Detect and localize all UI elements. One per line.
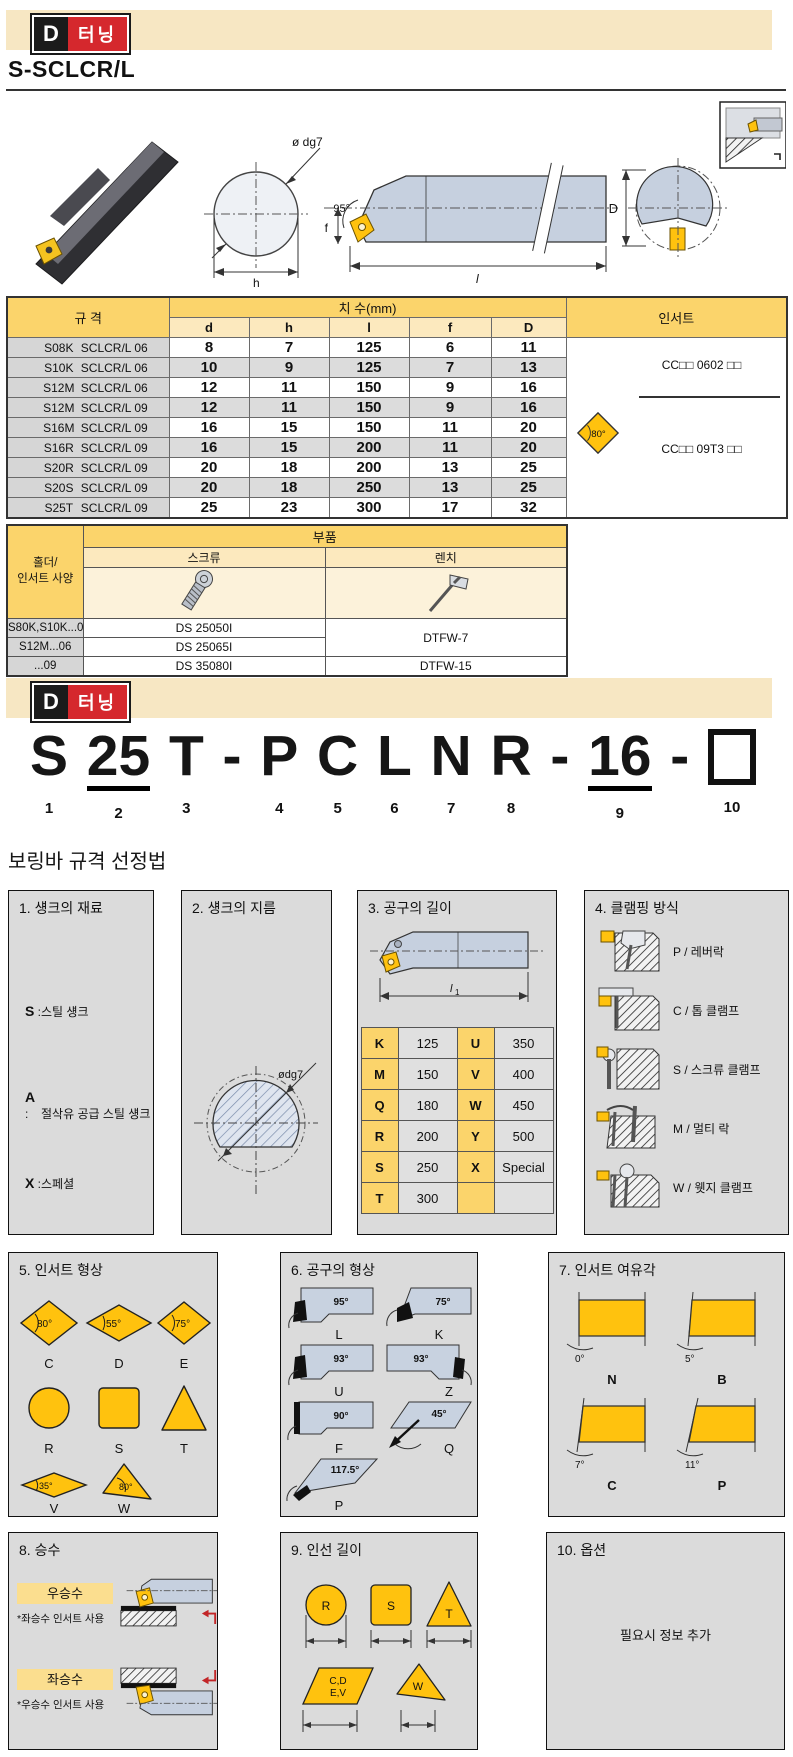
svg-text:90°: 90° <box>333 1411 348 1422</box>
svg-text:V: V <box>50 1501 59 1515</box>
svg-text:N: N <box>607 1372 616 1387</box>
dg7-label: ø dg7 <box>292 135 323 149</box>
box-title: 6. 공구의 형상 <box>281 1253 477 1280</box>
spec-table: 규 격 치 수(mm) 인서트 d h l f D S08KSCLCR/L 06… <box>6 296 788 519</box>
box-title: 7. 인서트 여유각 <box>549 1253 784 1280</box>
box-title: 5. 인서트 형상 <box>9 1253 217 1280</box>
svg-text:T: T <box>180 1441 188 1456</box>
svg-text:Z: Z <box>445 1384 453 1399</box>
pn-segment: T3 <box>169 726 204 818</box>
svg-text:P: P <box>335 1498 344 1513</box>
part-number: S1 252 T3 - P4 C5 L6 N7 R8 - 169 - 10 <box>30 726 756 823</box>
f-label: f <box>325 221 329 235</box>
screw-part-no: DS 25050I <box>83 619 325 638</box>
insert-header: 인서트 <box>566 297 787 338</box>
l1-sub: 1 <box>455 988 460 997</box>
l1-label: l <box>450 983 453 995</box>
insert-shape-diagram: 80° 55° 75° C D E R S T 35° 80° V W <box>9 1280 216 1515</box>
side-view: 95° f l <box>324 163 618 286</box>
option-box-icon <box>708 729 756 785</box>
clamping-option: S / 스크류 클램프 <box>593 1043 782 1095</box>
left-hand-chip: 좌승수 <box>17 1669 113 1690</box>
style-K: 75° K <box>387 1288 471 1342</box>
svg-text:C: C <box>44 1356 53 1371</box>
wrench-image <box>416 569 476 615</box>
material-option: A절삭유 공급 스틸 섕크 <box>25 1089 150 1122</box>
tool-length-table: K125U350 M150V400 Q180W450 R200Y500 S250… <box>361 1027 554 1214</box>
svg-text:C: C <box>607 1478 617 1493</box>
box-shank-material: 1. 섕크의 재료 S스틸 섕크 A절삭유 공급 스틸 섕크 X스페셜 <box>8 890 154 1235</box>
spec-code: S08K <box>29 341 81 355</box>
insert-column: CC□□ 0602 □□ 80° CC□□ 09T3 □□ <box>566 338 787 519</box>
style-Z: 93° Z <box>387 1345 471 1399</box>
edge-length-diagram: R S T C,D E,V W <box>281 1560 476 1746</box>
insert-code-bottom: CC□□ 09T3 □□ <box>622 442 782 456</box>
box-title: 4. 클램핑 방식 <box>585 891 788 918</box>
wrench-part-no: DTFW-7 <box>325 619 567 657</box>
svg-text:45°: 45° <box>431 1409 446 1420</box>
svg-text:F: F <box>335 1441 343 1456</box>
box-title: 2. 섕크의 지름 <box>182 891 331 918</box>
svg-text:C,D: C,D <box>329 1676 346 1687</box>
holder-row-label: S12M...06 <box>7 638 83 657</box>
svg-text:117.5°: 117.5° <box>331 1465 359 1476</box>
wedge-clamp-icon <box>593 1161 665 1213</box>
shank-diameter-diagram: ødg7 <box>182 918 330 1233</box>
brand-bar-top: D 터닝 <box>6 10 772 50</box>
material-option: X스페셜 <box>25 1175 74 1192</box>
screw-part-no: DS 35080I <box>83 657 325 677</box>
multi-lock-icon <box>593 1102 665 1154</box>
box-tool-length: 3. 공구의 길이 l 1 K125U350 M150V400 Q180W450… <box>357 890 557 1235</box>
svg-text:80°: 80° <box>37 1319 52 1330</box>
svg-text:5°: 5° <box>685 1354 695 1365</box>
table-row: S08KSCLCR/L 06 87125611 CC□□ 0602 □□ 80°… <box>7 338 787 358</box>
right-hand-chip: 우승수 <box>17 1583 113 1604</box>
top-clamp-icon <box>593 984 665 1036</box>
col-l: l <box>329 318 409 338</box>
left-hand-option: 좌승수 *우승수 인서트 사용 <box>17 1659 219 1721</box>
svg-text:11°: 11° <box>685 1460 699 1471</box>
selection-guide-title: 보링바 규격 선정법 <box>8 845 166 874</box>
pn-segment: 252 <box>87 726 150 823</box>
svg-text:S: S <box>115 1441 124 1456</box>
pn-segment: P4 <box>260 726 298 818</box>
holder-row-label: ...09 <box>7 657 83 677</box>
brand-bar-mid: D 터닝 <box>6 678 772 718</box>
tool-length-diagram: l 1 <box>358 918 555 1018</box>
dg7-label: ødg7 <box>278 1069 303 1081</box>
spec-name: SCLCR/L 06 <box>81 341 148 355</box>
box-option: 10. 옵션 필요시 정보 추가 <box>546 1532 785 1750</box>
box-tool-style: 6. 공구의 형상 95° L 75° K 93° U <box>280 1252 478 1517</box>
pn-dash: - <box>670 726 689 818</box>
logo-brand-text: 터닝 <box>68 17 127 51</box>
parts-header: 부품 <box>83 525 567 548</box>
insert-divider <box>639 396 781 398</box>
box-clamping-system: 4. 클램핑 방식 P / 레버락 C / 톱 클램프 <box>584 890 789 1235</box>
end-view: D <box>609 158 728 258</box>
D-label: D <box>609 201 618 216</box>
l-label: l <box>476 272 479 286</box>
dims-header: 치 수(mm) <box>169 297 566 318</box>
pn-segment: S1 <box>30 726 68 818</box>
right-hand-note: *좌승수 인서트 사용 <box>17 1611 113 1626</box>
pn-segment: 169 <box>588 726 651 823</box>
clearance-angle-diagram: 0° N 5° B 7° C 11° P <box>549 1280 783 1514</box>
page-title: S-SCLCR/L <box>8 56 135 83</box>
logo-d-icon: D <box>34 17 68 51</box>
svg-text:93°: 93° <box>413 1354 428 1365</box>
screw-image <box>174 569 234 615</box>
h-label: h <box>253 276 260 288</box>
svg-text:R: R <box>44 1441 53 1456</box>
svg-text:D: D <box>114 1356 123 1371</box>
shank-section-view: ø dg7 h <box>204 135 323 288</box>
svg-text:35°: 35° <box>39 1481 53 1491</box>
svg-text:55°: 55° <box>106 1319 121 1330</box>
pn-segment: C5 <box>317 726 358 818</box>
svg-text:B: B <box>717 1372 726 1387</box>
clamping-option: P / 레버락 <box>593 925 782 977</box>
screw-image-cell <box>83 568 325 619</box>
option-note: 필요시 정보 추가 <box>547 1625 784 1644</box>
style-U: 93° U <box>289 1345 373 1399</box>
svg-text:Q: Q <box>444 1441 454 1456</box>
screw-part-no: DS 25065I <box>83 638 325 657</box>
pn-option-box: 10 <box>708 726 756 817</box>
svg-text:75°: 75° <box>175 1319 190 1330</box>
wrench-part-no: DTFW-15 <box>325 657 567 677</box>
svg-text:P: P <box>718 1478 727 1493</box>
col-h: h <box>249 318 329 338</box>
svg-text:K: K <box>435 1327 444 1342</box>
col-D: D <box>491 318 566 338</box>
svg-text:W: W <box>413 1681 424 1693</box>
style-P: 117.5° P <box>287 1459 377 1513</box>
wrench-image-cell <box>325 568 567 619</box>
svg-text:80°: 80° <box>119 1482 133 1492</box>
insert-code-top: CC□□ 0602 □□ <box>622 358 782 372</box>
material-option: S스틸 섕크 <box>25 1003 89 1020</box>
svg-text:W: W <box>118 1501 131 1515</box>
logo-d-icon: D <box>34 685 68 719</box>
holder-row-label: S80K,S10K...06 <box>7 619 83 638</box>
box-shank-diameter: 2. 섕크의 지름 ødg7 <box>181 890 332 1235</box>
svg-text:93°: 93° <box>333 1354 348 1365</box>
screw-clamp-icon <box>593 1043 665 1095</box>
angle-N: 0° N <box>567 1292 645 1387</box>
application-icon <box>720 102 786 168</box>
pn-segment: N7 <box>431 726 472 818</box>
screw-header: 스크류 <box>83 548 325 568</box>
pn-dash: - <box>550 726 569 818</box>
style-L: 95° L <box>289 1288 373 1342</box>
title-divider <box>6 89 786 91</box>
col-d: d <box>169 318 249 338</box>
angle-P: 11° P <box>677 1398 755 1493</box>
catalog-page: D 터닝 S-SCLCR/L ø dg7 <box>0 0 793 1757</box>
brand-logo: D 터닝 <box>30 13 131 55</box>
svg-text:75°: 75° <box>435 1297 450 1308</box>
svg-text:7°: 7° <box>575 1460 585 1471</box>
svg-text:L: L <box>335 1327 342 1342</box>
box-title: 8. 승수 <box>9 1533 217 1560</box>
pn-segment: R8 <box>490 726 531 818</box>
svg-text:T: T <box>445 1607 453 1621</box>
insert-angle-label: 80° <box>591 429 606 440</box>
clamping-option: C / 톱 클램프 <box>593 984 782 1036</box>
box-title: 1. 섕크의 재료 <box>9 891 153 918</box>
left-hand-illustration <box>119 1659 219 1721</box>
box-clearance-angle: 7. 인서트 여유각 0° N 5° B 7° C <box>548 1252 785 1517</box>
svg-text:S: S <box>387 1599 395 1613</box>
angle-B: 5° B <box>677 1292 755 1387</box>
box-title: 3. 공구의 길이 <box>358 891 556 918</box>
technical-drawing: ø dg7 h 95° f <box>6 96 786 288</box>
style-Q: 45° Q <box>389 1402 471 1456</box>
col-f: f <box>409 318 491 338</box>
svg-text:0°: 0° <box>575 1354 585 1365</box>
box-title: 10. 옵션 <box>547 1533 784 1560</box>
right-hand-option: 우승수 *좌승수 인서트 사용 <box>17 1573 219 1635</box>
clamping-option: W / 웻지 클램프 <box>593 1161 782 1213</box>
insert-diamond-icon: 80° <box>575 410 621 456</box>
svg-text:E: E <box>180 1356 189 1371</box>
svg-text:U: U <box>334 1384 343 1399</box>
box-hand: 8. 승수 우승수 *좌승수 인서트 사용 좌승수 *우승수 인서트 사용 <box>8 1532 218 1750</box>
holder-header: 홀더/ 인서트 사양 <box>7 525 83 619</box>
lever-lock-icon <box>593 925 665 977</box>
logo-brand-text: 터닝 <box>68 685 127 719</box>
box-title: 9. 인선 길이 <box>281 1533 477 1560</box>
svg-text:E,V: E,V <box>330 1688 346 1699</box>
spec-header: 규 격 <box>7 297 169 338</box>
tool-style-diagram: 95° L 75° K 93° U 93° <box>281 1280 476 1514</box>
box-insert-shape: 5. 인서트 형상 80° 55° 75° C D E R S T 35° <box>8 1252 218 1517</box>
style-F: 90° F <box>288 1402 373 1456</box>
tool-photo <box>36 142 178 284</box>
angle-C: 7° C <box>567 1398 645 1493</box>
pn-dash: - <box>223 726 242 818</box>
left-hand-note: *우승수 인서트 사용 <box>17 1697 113 1712</box>
pn-segment: L6 <box>377 726 412 818</box>
brand-logo: D 터닝 <box>30 681 131 723</box>
wrench-header: 렌치 <box>325 548 567 568</box>
svg-text:95°: 95° <box>333 1297 348 1308</box>
box-edge-length: 9. 인선 길이 R S T C,D E,V W <box>280 1532 478 1750</box>
svg-text:R: R <box>322 1599 331 1613</box>
parts-table: 홀더/ 인서트 사양 부품 스크류 렌치 <box>6 524 568 677</box>
right-hand-illustration <box>119 1573 219 1635</box>
clamping-option: M / 멀티 락 <box>593 1102 782 1154</box>
